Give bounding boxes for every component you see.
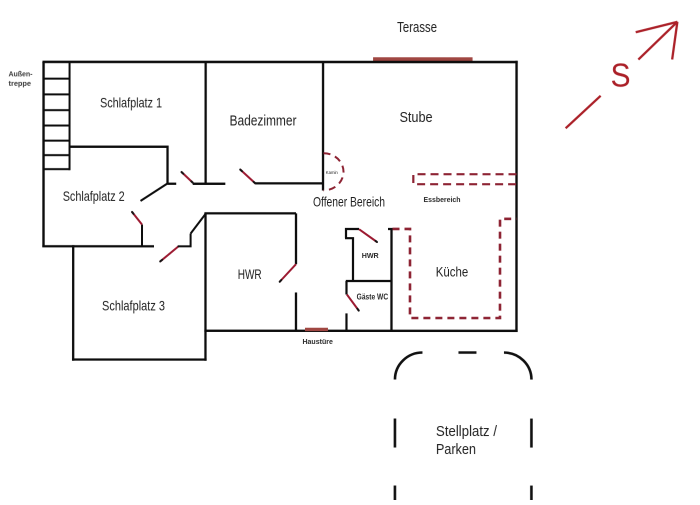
svg-text:Stube: Stube [400,109,433,126]
svg-text:Außen-: Außen- [9,71,34,78]
svg-text:treppe: treppe [9,81,32,88]
svg-text:S: S [611,57,631,94]
svg-text:HWR: HWR [362,251,380,260]
svg-text:Schlafplatz 2: Schlafplatz 2 [63,188,125,204]
svg-text:Offener Bereich: Offener Bereich [313,193,385,209]
svg-text:Terasse: Terasse [397,19,437,36]
svg-text:Parken: Parken [436,441,476,458]
svg-text:Schlafplatz 3: Schlafplatz 3 [102,297,165,313]
svg-text:Badezimmer: Badezimmer [230,113,297,130]
svg-text:Haustüre: Haustüre [302,337,333,346]
svg-text:HWR: HWR [238,266,262,282]
svg-text:Küche: Küche [436,263,469,279]
svg-text:Essbereich: Essbereich [424,195,461,204]
svg-text:Schlafplatz 1: Schlafplatz 1 [100,95,162,111]
svg-text:Gäste WC: Gäste WC [357,292,389,301]
svg-text:Kamin: Kamin [326,170,338,175]
svg-text:Stellplatz /: Stellplatz / [436,423,498,440]
